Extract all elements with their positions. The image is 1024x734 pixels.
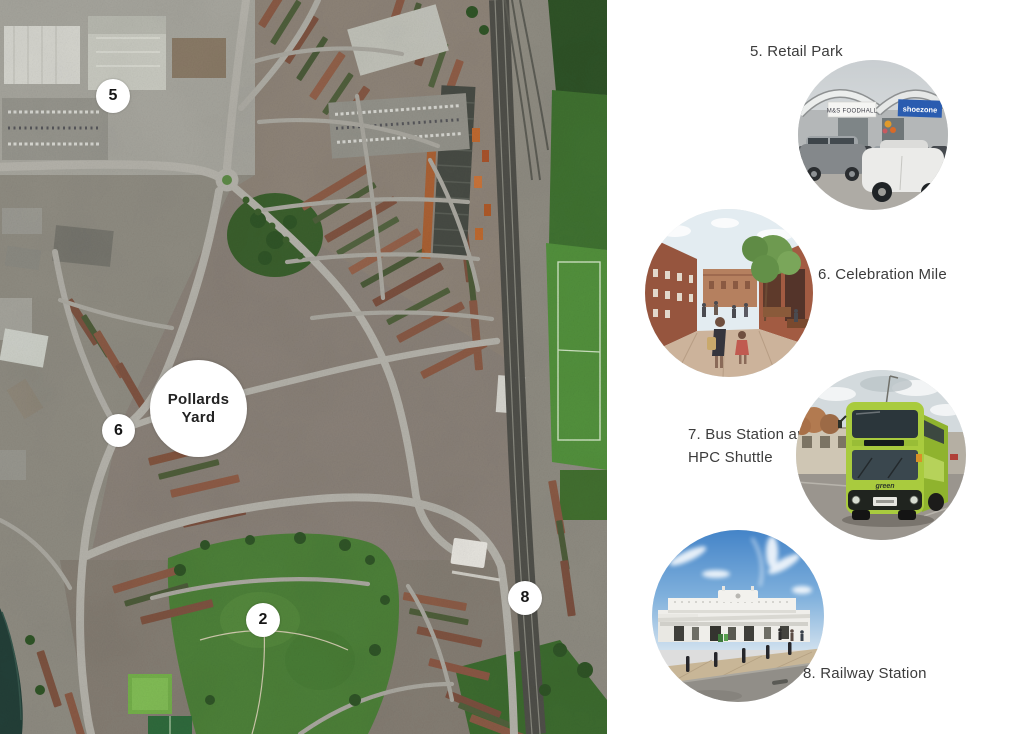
railway-station-label: 8. Railway Station [803, 665, 927, 682]
retail-park-photo: M&S FOODHALL shoezone [798, 60, 948, 210]
map-marker-2-number: 2 [259, 611, 268, 629]
pollards-yard-line1: Pollards [168, 391, 230, 409]
brochure-page: 5 6 2 8 Pollards Yard 5. Retail Park [0, 0, 1024, 734]
aerial-map-image [0, 0, 607, 734]
shoezone-sign: shoezone [903, 104, 938, 114]
bus-station-photo: green [796, 370, 966, 540]
bus-station-label-line1: 7. Bus Station and [688, 423, 814, 446]
railway-station-photo [652, 530, 824, 702]
double-decker-bus: green [838, 402, 948, 520]
pollards-yard-callout: Pollards Yard [150, 360, 247, 457]
map-marker-5: 5 [96, 79, 130, 113]
ms-foodhall-sign: M&S FOODHALL [827, 109, 878, 115]
map-marker-8: 8 [508, 581, 542, 615]
celebration-mile-label: 6. Celebration Mile [818, 266, 947, 283]
bus-brand-logo: green [874, 483, 894, 490]
map-marker-6: 6 [102, 414, 135, 447]
retail-park-label: 5. Retail Park [750, 43, 843, 60]
map-marker-5-number: 5 [109, 87, 118, 105]
pollards-yard-line2: Yard [182, 409, 216, 427]
celebration-mile-photo [645, 209, 813, 377]
map-marker-2: 2 [246, 603, 280, 637]
bus-station-label: 7. Bus Station and HPC Shuttle [688, 423, 814, 469]
aerial-map: 5 6 2 8 Pollards Yard [0, 0, 607, 734]
map-marker-6-number: 6 [114, 422, 123, 440]
legend-panel: 5. Retail Park M&S FOODHALL [607, 0, 1024, 734]
map-marker-8-number: 8 [521, 589, 530, 607]
